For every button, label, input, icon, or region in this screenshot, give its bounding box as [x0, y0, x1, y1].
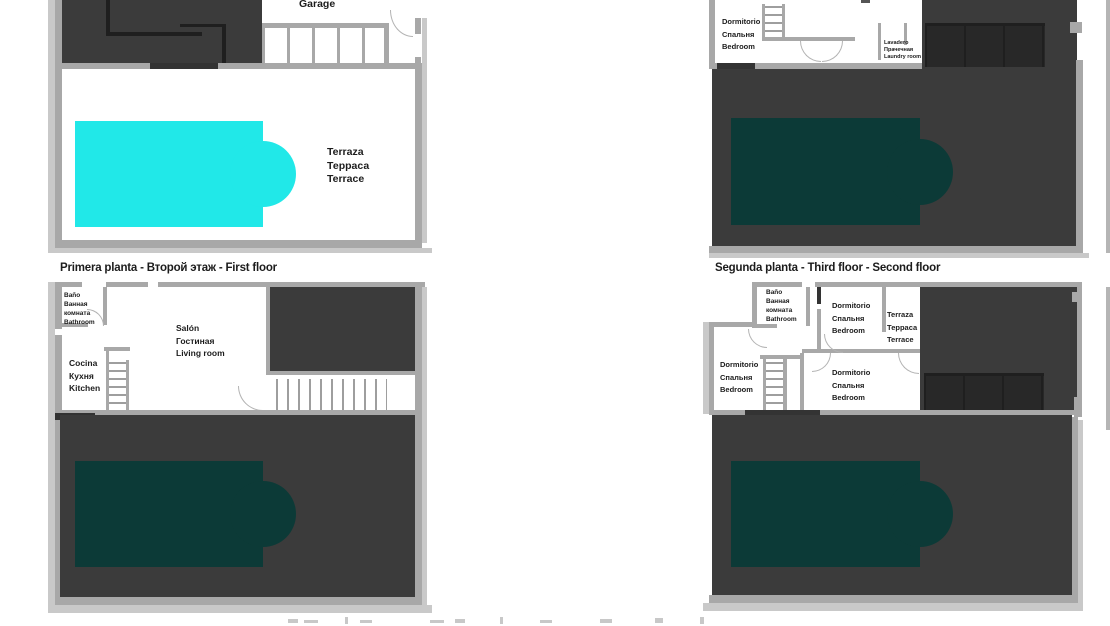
- outer-shadow-bottom: [48, 248, 432, 253]
- image-edge-strip: [1106, 0, 1110, 253]
- bathroom-wall: [806, 287, 810, 326]
- window-gap: [148, 282, 158, 287]
- wall-top-mid: [55, 63, 422, 69]
- wall-bottom: [709, 595, 1072, 603]
- stairs-rail: [782, 4, 785, 40]
- interior-wall-line: [106, 32, 202, 36]
- bathroom-wall: [752, 324, 777, 328]
- wall-bottom: [55, 240, 422, 248]
- text-fragment: [655, 618, 663, 623]
- terrace-label: Terraza Терраса Terrace: [327, 146, 369, 187]
- roofed-stairs-edge: [924, 373, 1044, 376]
- stairs-treads: [109, 362, 126, 408]
- carport-slats: [262, 28, 389, 65]
- outer-shadow-bottom: [709, 253, 1089, 258]
- garage-label: Garage: [299, 0, 335, 12]
- stairs-treads: [765, 6, 782, 38]
- text-fragment: [430, 620, 444, 623]
- carport-post: [384, 23, 389, 67]
- bathroom-label: Baño Ванная комната Bathroom: [766, 288, 797, 324]
- bedroom-label: Dormitorio Спальня Bedroom: [722, 16, 760, 54]
- wall-right: [1076, 60, 1083, 247]
- text-fragment: [345, 617, 348, 624]
- wall-upper-left: [752, 282, 757, 327]
- bathroom-door-arc: [748, 329, 767, 348]
- floor-plans-image: Garage Terraza Терраса Terrace Primera p…: [0, 0, 1110, 626]
- outer-shadow-right: [422, 287, 427, 611]
- gate-post: [415, 18, 421, 34]
- wall-left: [709, 0, 715, 69]
- image-edge-strip: [1106, 287, 1110, 430]
- outer-shadow-right: [422, 18, 427, 243]
- wall-left: [709, 327, 714, 415]
- terrace-door-arc: [898, 353, 919, 374]
- roofed-stairs-edge: [925, 23, 1045, 26]
- text-fragment: [540, 620, 552, 623]
- bathroom-label: Baño Ванная комната Bathroom: [64, 291, 95, 327]
- wall-right: [415, 69, 422, 240]
- bedroom-center-label: Dormitorio Спальня Bedroom: [832, 367, 870, 405]
- wall-right: [415, 287, 422, 605]
- interior-wall-line: [180, 24, 226, 27]
- upper-roof-mass: [270, 287, 423, 374]
- text-fragment: [700, 617, 704, 624]
- kitchen-label: Cocina Кухня Kitchen: [69, 357, 100, 395]
- wall-right: [1077, 287, 1082, 417]
- interior-wall-line: [106, 0, 110, 36]
- entrance-door-arc: [390, 10, 413, 37]
- pool-rounded-end: [230, 141, 296, 207]
- interior-wall-line: [222, 24, 226, 63]
- laundry-wall: [878, 23, 881, 60]
- text-fragment: [288, 619, 298, 623]
- gate-post: [415, 57, 421, 69]
- roofed-stairs-band: [925, 23, 1045, 67]
- pool-below-rounded-end: [230, 481, 296, 547]
- cropped-label-fragment: [861, 0, 870, 3]
- wall-tab-right: [1070, 22, 1082, 33]
- bedroom-top-label: Dormitorio Спальня Bedroom: [832, 300, 870, 338]
- dark-wall-piece: [817, 287, 821, 304]
- door-arc: [822, 41, 843, 62]
- door-arc: [238, 386, 263, 411]
- terrace-label: Terraza Терраса Terrace: [887, 309, 917, 347]
- pool-below-rounded-end: [887, 481, 953, 547]
- outer-shadow-bottom: [703, 603, 1083, 611]
- bathroom-wall: [103, 287, 107, 325]
- text-fragment: [360, 620, 372, 623]
- roof-edge-wall: [266, 287, 270, 374]
- wall-step: [709, 322, 757, 327]
- wall-bottom: [55, 597, 422, 605]
- outer-shadow-left: [48, 0, 55, 253]
- stairs-rail: [126, 360, 129, 413]
- exterior-stairs-treads: [276, 379, 387, 412]
- laundry-label: Lavadero Прачечная Laundry room: [884, 40, 921, 61]
- text-fragment: [500, 617, 503, 624]
- wall-left: [55, 0, 62, 248]
- outer-shadow-left: [48, 282, 55, 613]
- outer-shadow-bottom: [48, 605, 432, 613]
- caption-second-floor: Segunda planta - Third floor - Second fl…: [715, 262, 940, 274]
- roofed-stairs-band: [924, 373, 1044, 415]
- text-fragment: [304, 620, 318, 623]
- bedroom-top-wall: [817, 309, 821, 349]
- stairs-top-wall: [760, 355, 802, 359]
- window-sill: [150, 63, 218, 69]
- bedroom-center-wall: [800, 353, 804, 415]
- text-fragment: [455, 619, 465, 623]
- wall-mid: [266, 371, 423, 375]
- outer-shadow-right: [1078, 420, 1083, 605]
- caption-first-floor: Primera planta - Второй этаж - First flo…: [60, 262, 277, 274]
- pool-below-rounded-end: [887, 139, 953, 205]
- door-arc: [812, 353, 831, 372]
- door-arc: [800, 41, 821, 62]
- stairs-treads: [766, 362, 783, 410]
- living-room-label: Salón Гостиная Living room: [176, 322, 225, 360]
- stairs-rail: [783, 355, 787, 415]
- text-fragment: [600, 619, 612, 623]
- terrace-wall: [882, 287, 886, 332]
- wall-bottom: [709, 246, 1083, 253]
- bedroom-left-label: Dormitorio Спальня Bedroom: [720, 359, 758, 397]
- door-gap: [55, 329, 62, 335]
